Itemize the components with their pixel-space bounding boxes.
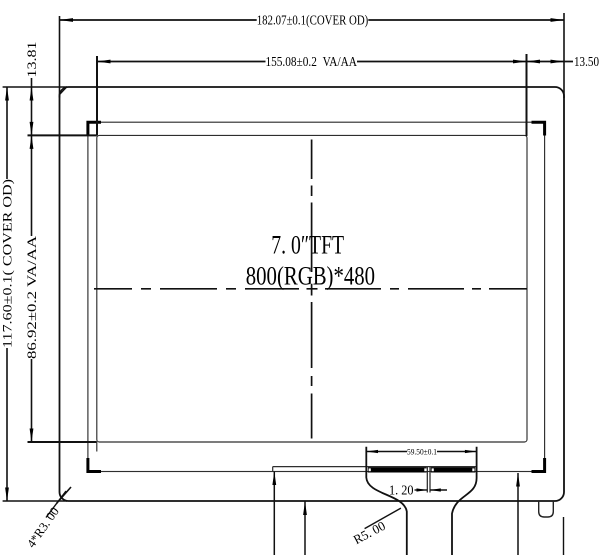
svg-text:800(RGB)*480: 800(RGB)*480 (246, 261, 375, 291)
svg-text:7. 0″TFT: 7. 0″TFT (271, 230, 344, 260)
svg-text:1. 20: 1. 20 (389, 483, 414, 498)
svg-text:13.81: 13.81 (25, 42, 39, 78)
svg-text:13.50: 13.50 (574, 54, 599, 69)
svg-text:182.07±0.1(COVER OD): 182.07±0.1(COVER OD) (257, 14, 369, 29)
svg-text:155.08±0.2 VA/AA: 155.08±0.2 VA/AA (265, 55, 357, 70)
svg-text:117.60±0.1( COVER OD): 117.60±0.1( COVER OD) (0, 179, 15, 348)
svg-text:59.50±0.1: 59.50±0.1 (407, 447, 437, 456)
svg-text:86.92±0.2 VA/AA: 86.92±0.2 VA/AA (24, 235, 39, 359)
